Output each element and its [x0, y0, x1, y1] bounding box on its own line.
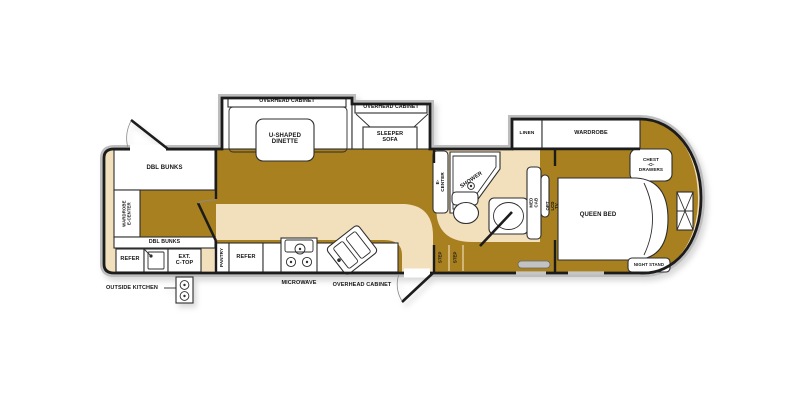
sleeper-sofa: [363, 127, 417, 149]
double-bunks-top: [114, 150, 215, 190]
bunkroom-door-swing: [127, 121, 131, 148]
medicine-cabinet: [527, 167, 541, 239]
floorplan-drawing: [0, 0, 800, 400]
dinette-table: [256, 119, 314, 161]
outside-sink-icon: [144, 249, 168, 272]
entry-door-swing: [397, 274, 402, 301]
bunk-wardrobe-ecenter: [114, 190, 140, 237]
double-bunks-bottom: [114, 237, 215, 248]
queen-bed: [558, 178, 668, 260]
entertainment-center: [433, 151, 448, 213]
linen-cabinet: [512, 120, 542, 148]
rv-floorplan: DBL BUNKS WARDROBE E-CENTER DBL BUNKS RE…: [0, 0, 800, 400]
floor-bunk-platform: [140, 190, 216, 237]
pantry: [216, 243, 229, 272]
chest-of-drawers: [630, 149, 672, 181]
hall-bench: [518, 261, 550, 268]
front-cap-hatch-icon: [677, 192, 693, 230]
tv-cabinet: [541, 175, 549, 217]
stove-burners-icon: [281, 238, 317, 272]
outside-kitchen-refer: [116, 249, 144, 272]
outside-kitchen-counter: [168, 249, 201, 272]
bedroom-wardrobe: [542, 120, 640, 148]
grill-icon: [176, 277, 193, 303]
kitchen-refer: [229, 243, 263, 272]
toilet-icon: [452, 192, 479, 224]
